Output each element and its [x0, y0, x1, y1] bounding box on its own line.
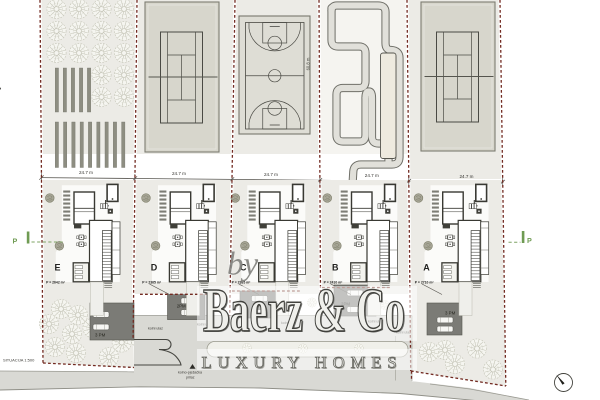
svg-text:3 PM: 3 PM [445, 311, 456, 316]
svg-text:24.7 m: 24.7 m [459, 174, 473, 179]
svg-text:LUXURY HOMES: LUXURY HOMES [202, 353, 403, 372]
svg-text:kolni ulaz: kolni ulaz [148, 327, 163, 331]
svg-text:24.7 m: 24.7 m [264, 172, 278, 177]
svg-text:P = 2710 m²: P = 2710 m² [415, 280, 435, 284]
svg-text:P: P [13, 237, 18, 246]
svg-text:24.7 m: 24.7 m [365, 173, 379, 178]
svg-text:prilaz: prilaz [186, 376, 195, 380]
svg-text:kolno-pješačka: kolno-pješačka [178, 371, 202, 375]
svg-text:2PM: 2PM [177, 304, 186, 309]
svg-text:P = 2642 m²: P = 2642 m² [46, 280, 66, 284]
svg-text:60.8 m: 60.8 m [306, 57, 311, 70]
svg-text:D: D [151, 262, 158, 272]
svg-text:SITUACIJA 1:500: SITUACIJA 1:500 [3, 358, 35, 363]
svg-text:E: E [55, 262, 61, 272]
svg-text:P = 2365 m²: P = 2365 m² [142, 280, 162, 284]
svg-text:3 PM: 3 PM [95, 333, 106, 338]
svg-text:B: B [332, 262, 339, 272]
svg-text:24.7 m: 24.7 m [79, 170, 93, 175]
svg-text:A: A [423, 262, 430, 272]
svg-text:P: P [527, 236, 532, 245]
svg-text:Baerz & Co: Baerz & Co [203, 277, 405, 345]
svg-text:24.7 m: 24.7 m [172, 171, 186, 176]
